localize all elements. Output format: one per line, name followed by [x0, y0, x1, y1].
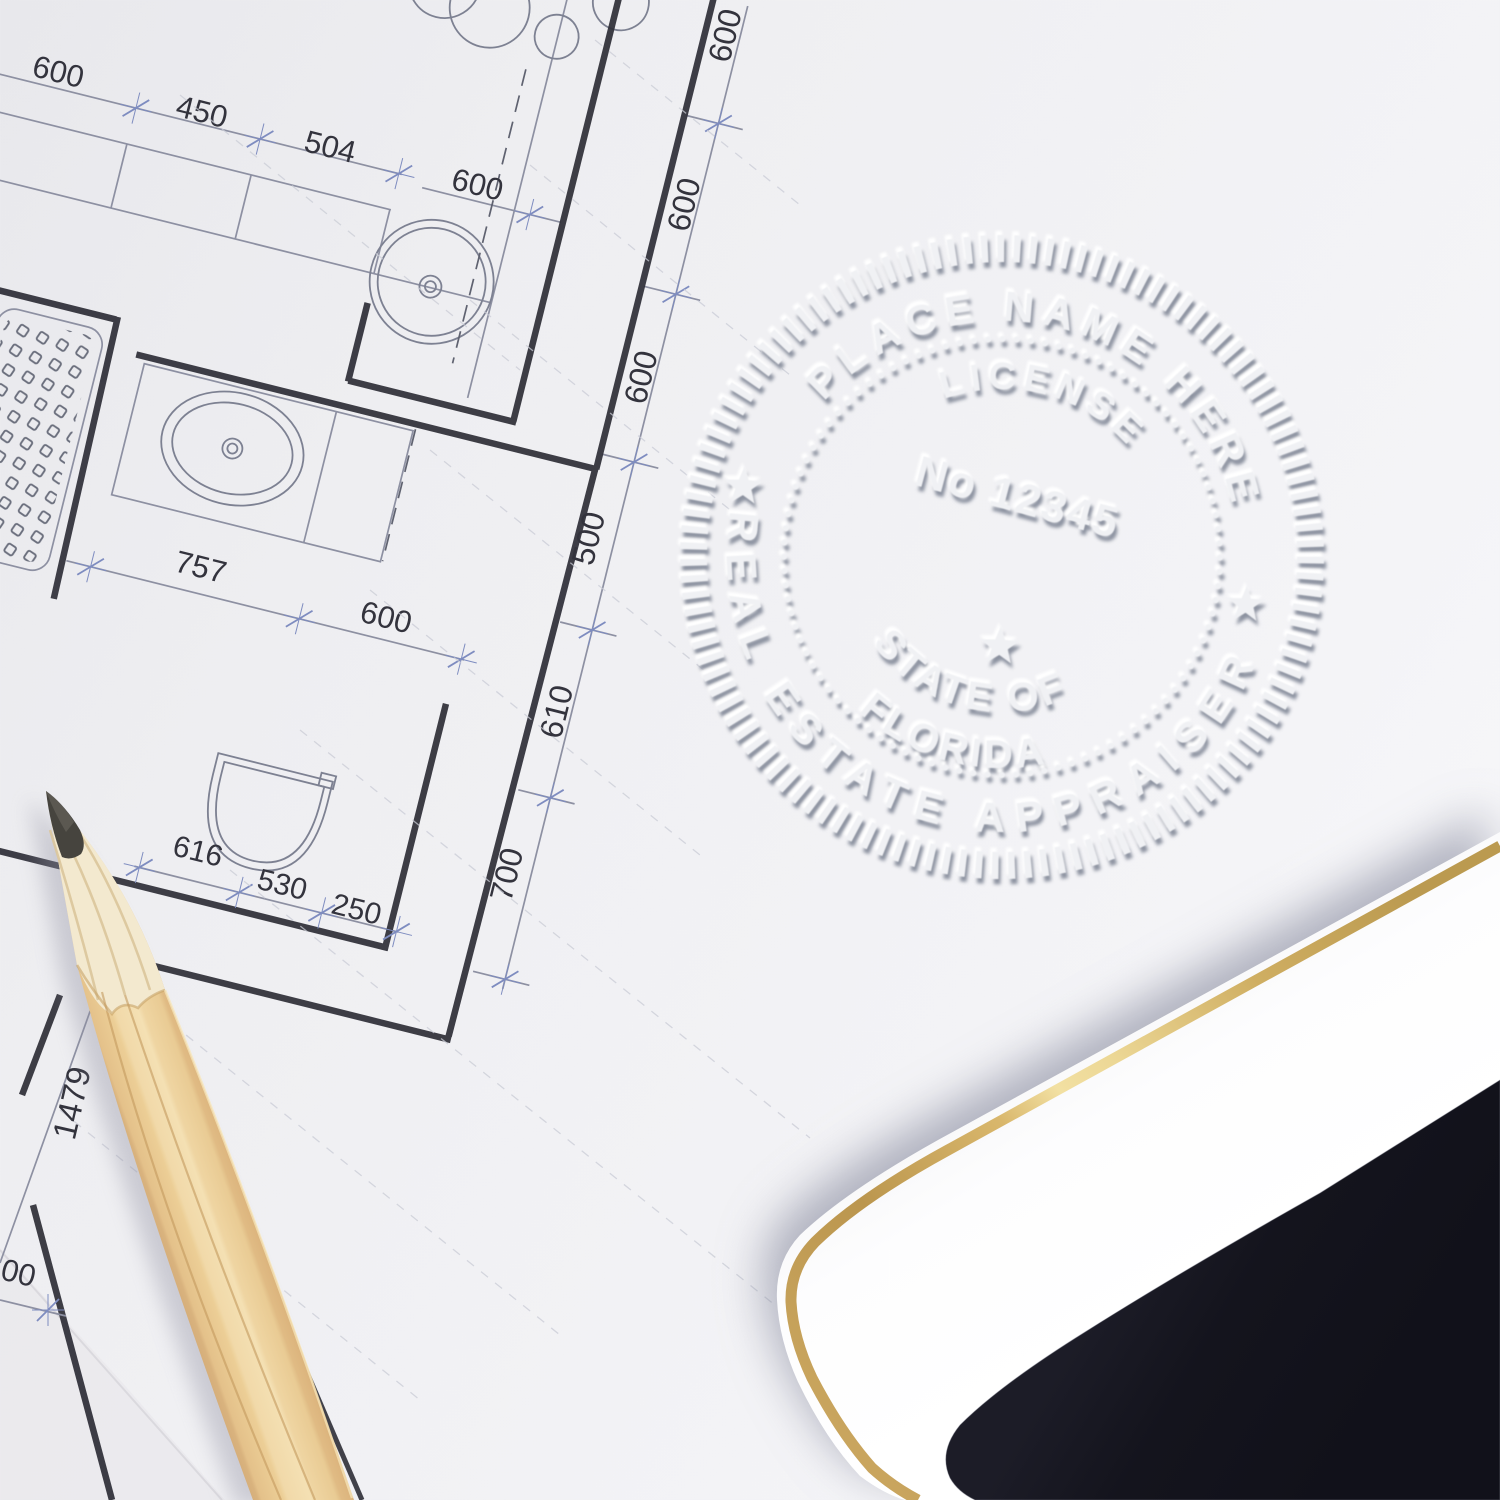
- svg-text:700: 700: [483, 844, 531, 905]
- svg-text:500: 500: [564, 508, 612, 569]
- svg-text:757: 757: [171, 544, 230, 590]
- svg-text:250: 250: [328, 888, 385, 932]
- svg-text:600: 600: [29, 49, 88, 95]
- svg-text:504: 504: [301, 124, 360, 170]
- svg-text:600: 600: [448, 161, 507, 207]
- svg-text:616: 616: [170, 830, 227, 874]
- svg-text:No 12345: No 12345: [911, 447, 1126, 548]
- svg-text:600: 600: [357, 594, 416, 640]
- svg-text:530: 530: [254, 863, 311, 907]
